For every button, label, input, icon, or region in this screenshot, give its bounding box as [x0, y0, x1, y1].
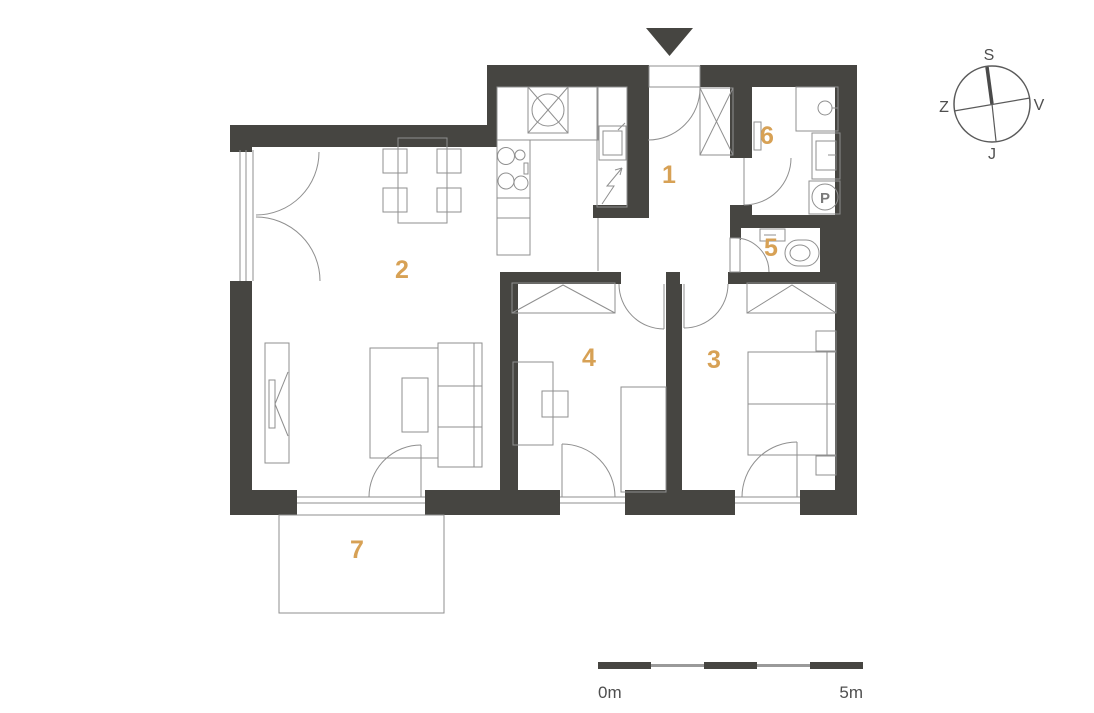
door-room3	[684, 284, 728, 328]
scale-end-label: 5m	[839, 683, 863, 702]
chair-icon	[437, 188, 461, 212]
nightstand-icon	[816, 456, 836, 475]
compass-rose: S V J Z	[939, 47, 1045, 163]
hallway-fixtures	[700, 88, 733, 155]
room-label-4: 4	[582, 344, 596, 372]
room-label-5: 5	[764, 234, 778, 262]
sofa-icon	[438, 343, 482, 467]
compass-label-west: Z	[939, 99, 949, 116]
entrance-door	[648, 66, 700, 140]
chair-icon	[542, 391, 568, 417]
bathroom-fixtures: P	[754, 87, 840, 214]
room-label-1: 1	[662, 161, 676, 189]
compass-label-north: S	[984, 47, 995, 64]
oven-icon	[599, 123, 626, 160]
scale-bar: 0m 5m	[598, 662, 863, 702]
hall-wardrobe-icon	[700, 88, 733, 155]
window-room4	[560, 444, 625, 503]
cooktop-icon	[498, 148, 529, 191]
floor-plan-svg: P	[0, 0, 1094, 713]
toilet-icon	[785, 240, 819, 266]
french-window-west	[240, 150, 320, 281]
tv-stand-icon	[265, 343, 289, 463]
window-room3	[735, 442, 800, 503]
kitchen-fixtures	[497, 87, 627, 271]
door-bathroom	[744, 158, 791, 205]
bedroom4-furniture	[512, 283, 666, 492]
floor-plan-page: P	[0, 0, 1094, 713]
wardrobe4-icon	[512, 283, 615, 313]
door-room4	[619, 284, 664, 329]
washing-machine-label: P	[820, 190, 830, 207]
chair-icon	[383, 188, 407, 212]
room-label-3: 3	[707, 346, 721, 374]
living-room-furniture	[265, 138, 482, 467]
room-label-6: 6	[760, 122, 774, 150]
balcony-door	[297, 445, 425, 503]
room-label-2: 2	[395, 256, 409, 284]
room-label-7: 7	[350, 536, 364, 564]
single-bed-icon	[621, 387, 666, 492]
kitchen-counter-top	[497, 87, 598, 140]
balcony-outline	[279, 515, 444, 613]
dining-table	[398, 138, 447, 223]
compass-north-needle	[987, 67, 992, 104]
shower-icon	[796, 87, 838, 131]
chair-icon	[383, 149, 407, 173]
desk-icon	[513, 362, 553, 445]
nightstand-icon	[816, 331, 836, 351]
compass-label-south: J	[988, 146, 996, 163]
wardrobe3-icon	[747, 283, 836, 313]
windows	[240, 150, 800, 503]
compass-label-east: V	[1034, 97, 1045, 114]
bedroom3-furniture	[747, 283, 836, 475]
chair-icon	[437, 149, 461, 173]
entrance-arrow-icon	[646, 28, 693, 56]
coffee-table	[402, 378, 428, 432]
scale-start-label: 0m	[598, 683, 622, 702]
double-bed-icon	[748, 352, 836, 455]
kitchen-sink-icon	[528, 87, 568, 133]
boiler-zigzag-icon	[602, 168, 622, 204]
